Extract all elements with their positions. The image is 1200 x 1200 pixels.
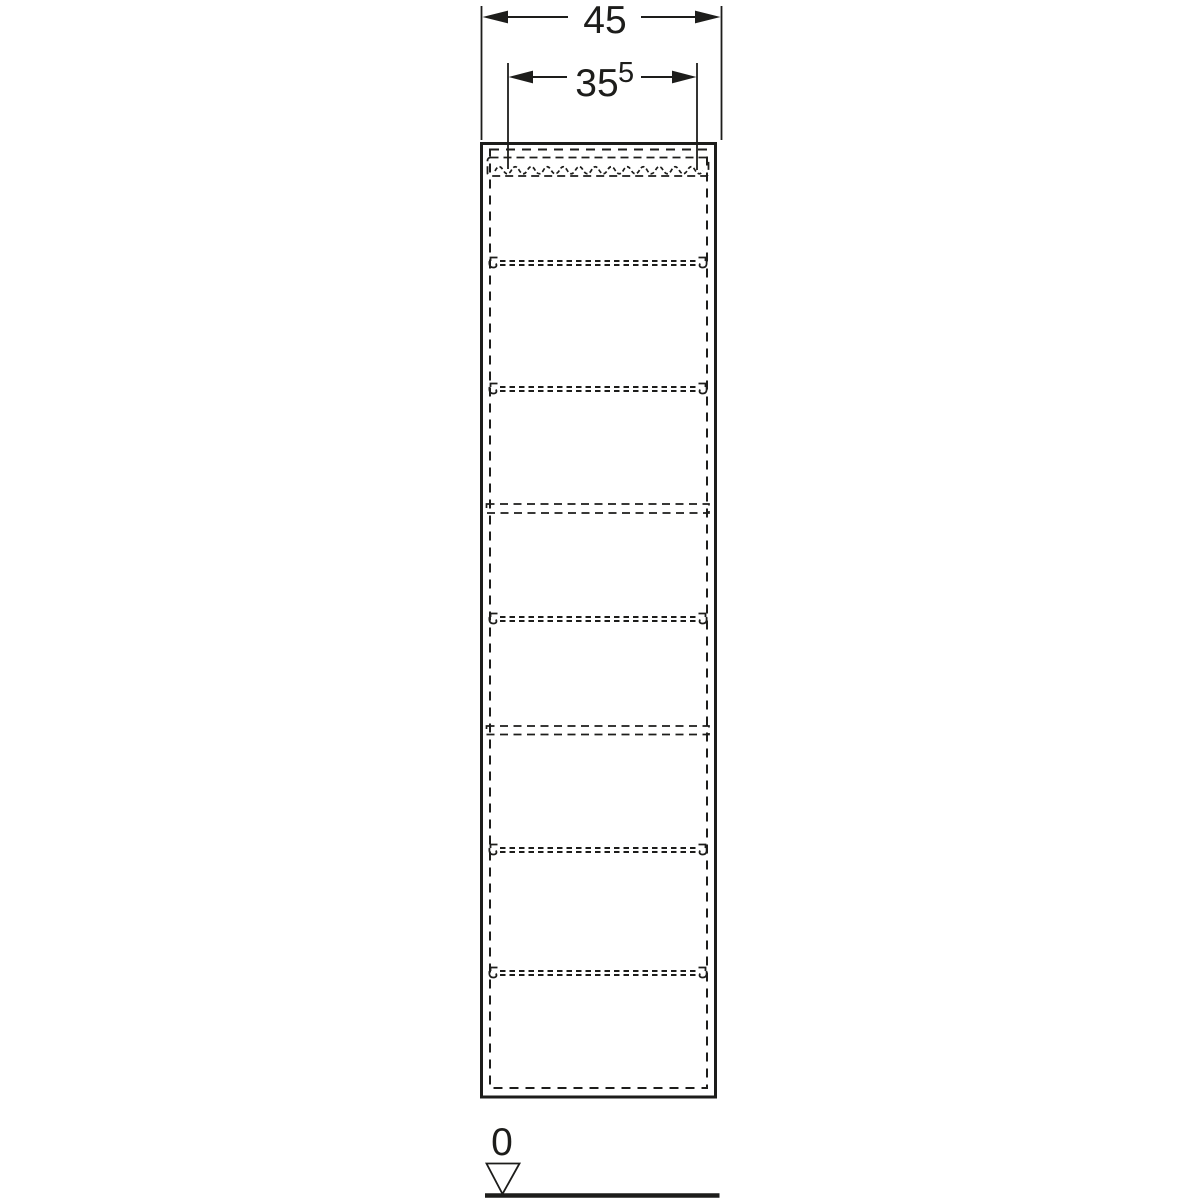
shelf-adjustable-2 (489, 384, 706, 394)
dimension-fixing-distance: 35 5 (508, 57, 697, 170)
cabinet (482, 144, 716, 1098)
dim-arrow-right-icon (672, 71, 697, 84)
dim-arrow-left-icon (509, 71, 534, 84)
shelf-adjustable-3 (489, 614, 706, 624)
cabinet-interior-hidden-outline (490, 150, 707, 1089)
drawing-svg: 45 35 5 (0, 0, 1200, 1200)
technical-drawing-canvas: 45 35 5 (0, 0, 1200, 1200)
mounting-rail (488, 158, 709, 177)
shelf-adjustable-5 (489, 968, 706, 978)
shelf-fixed-1 (487, 504, 710, 513)
fixing-distance-label: 35 (575, 62, 618, 105)
mounting-rail-teeth (495, 167, 703, 174)
datum-triangle-icon (487, 1164, 520, 1195)
dim-arrow-left-icon (483, 11, 509, 24)
shelf-fixed-2 (487, 726, 710, 735)
datum-label: 0 (491, 1121, 513, 1164)
dim-arrow-right-icon (695, 11, 721, 24)
shelf-adjustable-1 (489, 258, 706, 268)
fixing-distance-superscript: 5 (618, 57, 634, 89)
outer-width-label: 45 (583, 0, 626, 42)
shelf-adjustable-4 (489, 845, 706, 855)
floor-datum: 0 (485, 1121, 720, 1196)
